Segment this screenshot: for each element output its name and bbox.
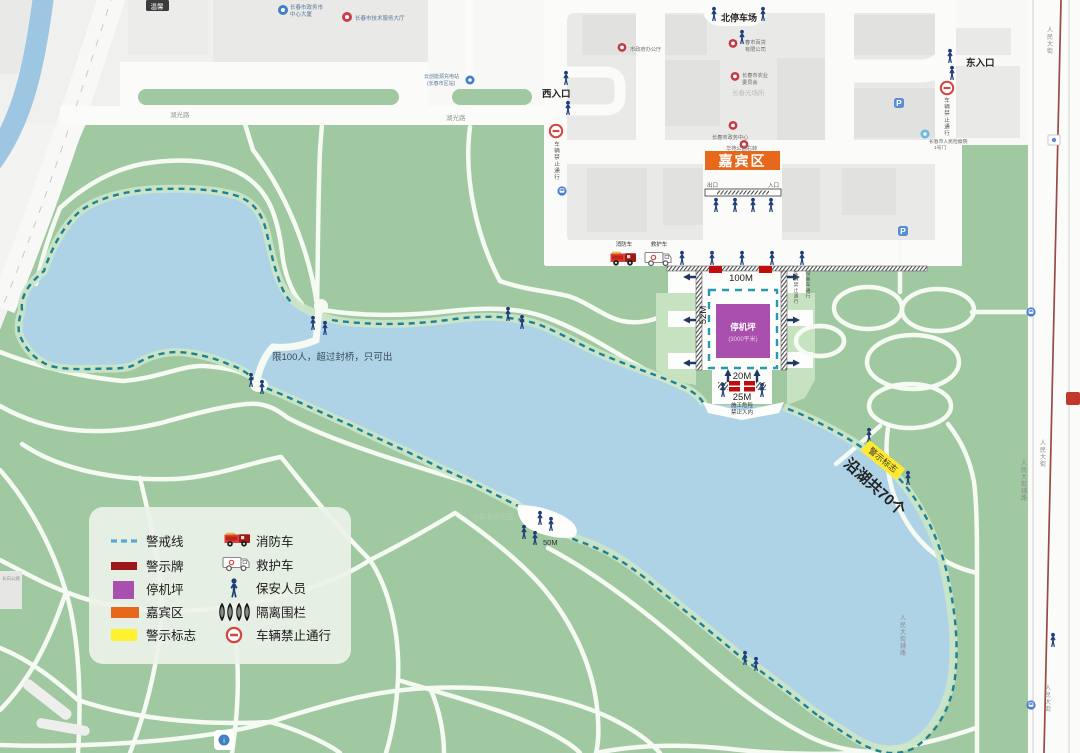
svg-text:中心大厦: 中心大厦 xyxy=(290,10,313,18)
svg-text:西入口: 西入口 xyxy=(542,89,571,100)
svg-text:长春市政务中心: 长春市政务中心 xyxy=(712,133,748,141)
svg-text:入口: 入口 xyxy=(768,182,779,189)
svg-text:长春市人民检察院: 长春市人民检察院 xyxy=(929,138,968,145)
svg-text:出口: 出口 xyxy=(707,181,718,189)
svg-text:车辆禁止通行: 车辆禁止通行 xyxy=(944,96,950,137)
svg-text:车辆禁止通行: 车辆禁止通行 xyxy=(554,140,560,181)
svg-text:(长春市区站): (长春市区站) xyxy=(427,80,456,87)
svg-text:施工危险: 施工危险 xyxy=(731,401,754,409)
svg-text:市政府办公厅: 市政府办公厅 xyxy=(630,45,661,53)
svg-text:长春市技术服务大厅: 长春市技术服务大厅 xyxy=(355,14,405,22)
svg-text:北停车场: 北停车场 xyxy=(721,12,757,23)
svg-text:车辆禁止通行: 车辆禁止通行 xyxy=(256,628,331,643)
svg-text:湖光路: 湖光路 xyxy=(170,110,190,119)
svg-text:温馨: 温馨 xyxy=(151,2,165,11)
svg-text:嘉宾区: 嘉宾区 xyxy=(146,605,184,620)
svg-text:华苑公园右转: 华苑公园右转 xyxy=(726,144,757,152)
svg-text:禁止入内: 禁止入内 xyxy=(731,408,753,416)
svg-text:50M: 50M xyxy=(543,538,558,547)
svg-text:警示标志: 警示标志 xyxy=(146,628,196,643)
svg-text:嘉宾区: 嘉宾区 xyxy=(718,153,767,169)
svg-text:消防车: 消防车 xyxy=(256,534,294,549)
svg-text:长春水文化园: 长春水文化园 xyxy=(472,512,514,521)
svg-text:东入口: 东入口 xyxy=(966,57,995,69)
svg-text:警示牌: 警示牌 xyxy=(146,559,184,574)
svg-text:云创能源充电站: 云创能源充电站 xyxy=(424,73,459,80)
svg-text:保安人员: 保安人员 xyxy=(256,581,306,596)
svg-text:湖光路: 湖光路 xyxy=(446,113,466,122)
svg-text:长春市农业: 长春市农业 xyxy=(742,71,768,79)
svg-text:长春光场所: 长春光场所 xyxy=(732,88,765,97)
svg-text:1号门: 1号门 xyxy=(934,144,946,151)
svg-text:长白公路: 长白公路 xyxy=(2,575,20,582)
svg-text:警戒线: 警戒线 xyxy=(146,534,184,549)
svg-text:52M: 52M xyxy=(698,306,709,325)
svg-text:100M: 100M xyxy=(729,273,753,284)
svg-text:春市百货: 春市百货 xyxy=(745,38,766,46)
svg-text:隔离围栏: 隔离围栏 xyxy=(256,605,306,620)
svg-text:委员会: 委员会 xyxy=(742,78,758,86)
svg-text:救护车: 救护车 xyxy=(256,558,294,573)
svg-text:25M: 25M xyxy=(733,392,752,403)
svg-text:限100人，超过封桥，只可出: 限100人，超过封桥，只可出 xyxy=(272,351,392,363)
svg-text:停机坪: 停机坪 xyxy=(730,322,756,332)
svg-text:长春市政务市: 长春市政务市 xyxy=(290,3,324,11)
svg-text:有限公司: 有限公司 xyxy=(745,45,766,53)
svg-text:设备车通行: 设备车通行 xyxy=(806,270,811,299)
svg-text:消防车: 消防车 xyxy=(616,240,633,248)
svg-text:救护车: 救护车 xyxy=(651,240,668,248)
svg-text:停机坪: 停机坪 xyxy=(146,582,184,597)
svg-text:20M: 20M xyxy=(733,371,752,382)
svg-text:车辆禁止通行: 车辆禁止通行 xyxy=(794,270,799,305)
svg-text:(3000平米): (3000平米) xyxy=(728,335,757,343)
